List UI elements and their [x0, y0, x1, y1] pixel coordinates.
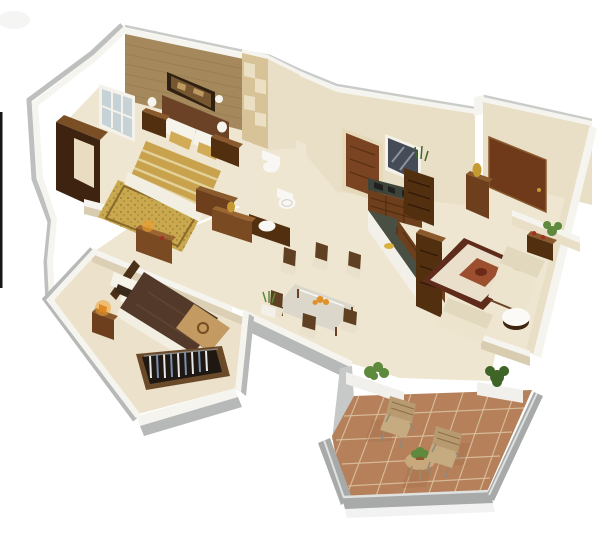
basin: [259, 221, 276, 232]
entry-door-handle: [537, 188, 541, 192]
wall-sconce-right: [215, 95, 223, 103]
entry-notch-wall: [474, 95, 484, 116]
bath-kitchen-divider: [296, 140, 306, 195]
dresser-red-item: [160, 236, 164, 240]
round-table-top: [502, 308, 530, 326]
lamp-left: [148, 97, 157, 107]
wc-bowl: [279, 197, 296, 209]
toilet-bowl: [263, 162, 279, 173]
bath-back-wall: [268, 59, 300, 150]
dresser-lamp-glow: [142, 220, 154, 232]
lamp-right: [217, 122, 227, 133]
gold-jar: [227, 202, 235, 213]
bath-divider-wall: [238, 138, 252, 212]
floorplan-svg: [0, 0, 604, 536]
living-rug-center: [475, 268, 487, 276]
gold-vase: [473, 163, 482, 177]
island-plate: [384, 243, 394, 249]
floorplan-render: [0, 0, 604, 536]
edge-artifact: [0, 112, 3, 288]
